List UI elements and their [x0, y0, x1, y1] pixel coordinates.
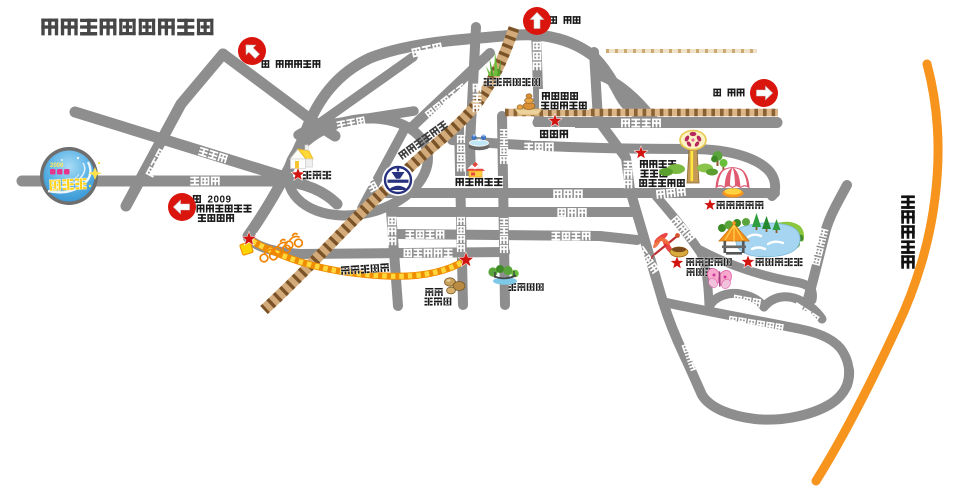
svg-text:9: 9: [226, 194, 232, 205]
svg-text:2009: 2009: [50, 163, 64, 169]
